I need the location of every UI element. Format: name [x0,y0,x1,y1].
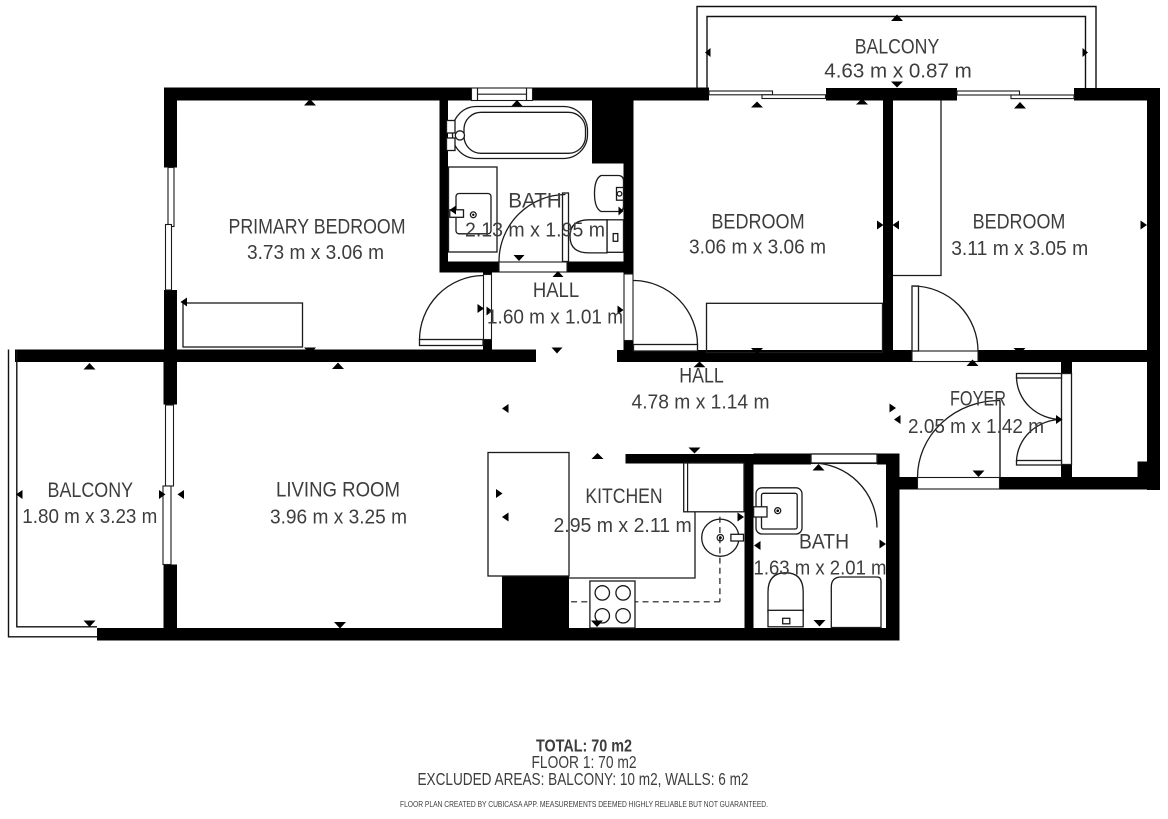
svg-text:2.13 m x 1.95 m: 2.13 m x 1.95 m [465,219,605,242]
svg-text:HALL: HALL [679,364,724,388]
svg-text:FLOOR PLAN CREATED BY CUBICASA: FLOOR PLAN CREATED BY CUBICASA APP. MEAS… [400,799,768,809]
svg-text:FOYER: FOYER [950,387,1006,411]
svg-text:BALCONY: BALCONY [48,478,134,502]
svg-text:BEDROOM: BEDROOM [711,209,804,233]
svg-text:4.78 m x 1.14 m: 4.78 m x 1.14 m [632,391,770,414]
svg-text:4.63 m x 0.87 m: 4.63 m x 0.87 m [824,60,972,83]
svg-text:EXCLUDED AREAS: BALCONY: 10 m2: EXCLUDED AREAS: BALCONY: 10 m2, WALLS: 6… [418,769,749,789]
svg-text:1.80 m x 3.23 m: 1.80 m x 3.23 m [22,505,157,528]
svg-text:2.95 m x 2.11 m: 2.95 m x 2.11 m [553,514,691,537]
svg-text:3.06 m x 3.06 m: 3.06 m x 3.06 m [689,236,826,259]
svg-text:2.05 m x 1.42 m: 2.05 m x 1.42 m [908,415,1044,438]
svg-text:HALL: HALL [533,278,579,302]
svg-text:BATH: BATH [799,530,849,554]
svg-text:LIVING ROOM: LIVING ROOM [276,478,400,502]
svg-text:BALCONY: BALCONY [855,34,940,58]
svg-text:3.73 m x 3.06 m: 3.73 m x 3.06 m [247,241,384,264]
svg-text:1.60 m x 1.01 m: 1.60 m x 1.01 m [487,306,623,329]
svg-text:BEDROOM: BEDROOM [973,209,1066,233]
svg-text:PRIMARY BEDROOM: PRIMARY BEDROOM [229,215,406,239]
svg-text:BATH: BATH [508,189,562,213]
svg-text:3.11 m x 3.05 m: 3.11 m x 3.05 m [951,237,1088,260]
svg-text:1.63 m x 2.01 m: 1.63 m x 2.01 m [754,557,887,580]
svg-text:3.96 m x 3.25 m: 3.96 m x 3.25 m [270,506,407,529]
svg-text:KITCHEN: KITCHEN [585,484,662,508]
